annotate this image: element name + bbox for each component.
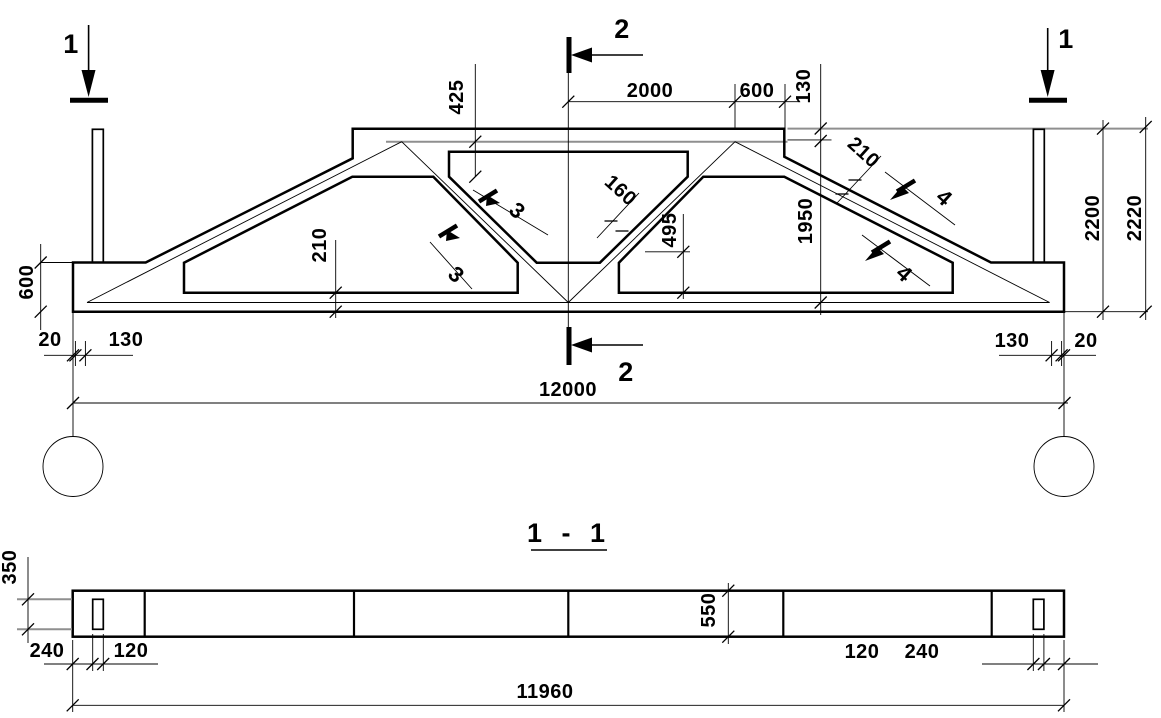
beam-panel-joints [145, 591, 992, 637]
section-2-label-top: 2 [614, 14, 630, 44]
elevation-dimension-lines [41, 64, 1148, 403]
grid-bubble-right [1034, 437, 1094, 497]
dim-240-right: 240 [905, 641, 940, 663]
dim-120-right: 120 [845, 641, 880, 663]
dim-2000: 2000 [627, 80, 674, 102]
dim-350: 350 [0, 550, 21, 585]
dim-210-diagonal: 210 [843, 133, 884, 173]
section-marker-2-bottom: 2 [569, 327, 643, 387]
section-2-label-bottom: 2 [618, 357, 634, 387]
dim-210-chord: 210 [309, 228, 331, 263]
section-1-label-left: 1 [63, 29, 79, 59]
technical-drawing: 1 1 2 2 3 3 [0, 0, 1161, 718]
section-marker-2-top: 2 [569, 14, 643, 73]
dim-130-left: 130 [109, 329, 144, 351]
dim-2200: 2200 [1082, 195, 1104, 242]
cut-marker-4-upper: 4 [890, 181, 958, 212]
left-support-post [92, 129, 103, 262]
right-support-post [1033, 129, 1044, 262]
dim-1950: 1950 [795, 198, 817, 245]
cut-marker-4-lower: 4 [865, 242, 918, 288]
dim-495: 495 [659, 213, 681, 248]
cut-4-label-upper: 4 [931, 184, 957, 211]
dim-550: 550 [698, 593, 720, 628]
cut-3-label-upper: 3 [504, 197, 530, 224]
dim-11960: 11960 [516, 681, 573, 703]
dim-240-left: 240 [30, 640, 65, 662]
cut-marker-3-upper: 3 [479, 191, 530, 225]
dim-20-right: 20 [1074, 330, 1097, 352]
dim-130-right: 130 [995, 330, 1030, 352]
dim-425: 425 [446, 80, 468, 115]
dim-130-top: 130 [793, 69, 815, 104]
section-1-1-view: 1 - 1 [0, 518, 1098, 712]
section-dimension-labels: 350 240 120 550 120 240 11960 [0, 550, 939, 703]
section-marker-1-left: 1 [63, 25, 108, 100]
dim-12000: 12000 [539, 379, 597, 401]
section-marker-1-right: 1 [1029, 24, 1074, 100]
cut-3-label-lower: 3 [443, 261, 469, 288]
grid-bubble-left [43, 437, 103, 497]
elevation-dimension-labels: 2000 600 130 425 160 210 1950 495 210 60… [16, 69, 1146, 401]
section-1-1-title: 1 - 1 [527, 518, 611, 548]
axis-lines [87, 73, 1050, 345]
dim-2220: 2220 [1124, 195, 1146, 242]
truss-drawing-sheet: 1 1 2 2 3 3 [0, 0, 1161, 718]
left-anchor-slot [93, 599, 104, 629]
section-1-label-right: 1 [1058, 24, 1074, 54]
dim-120-left: 120 [114, 640, 149, 662]
dim-600-top: 600 [740, 80, 775, 102]
right-anchor-slot [1033, 599, 1044, 629]
elevation-view: 1 1 2 2 3 3 [16, 14, 1152, 497]
dim-600-left: 600 [16, 265, 38, 300]
dim-160: 160 [600, 171, 641, 211]
dim-20-left: 20 [38, 329, 61, 351]
